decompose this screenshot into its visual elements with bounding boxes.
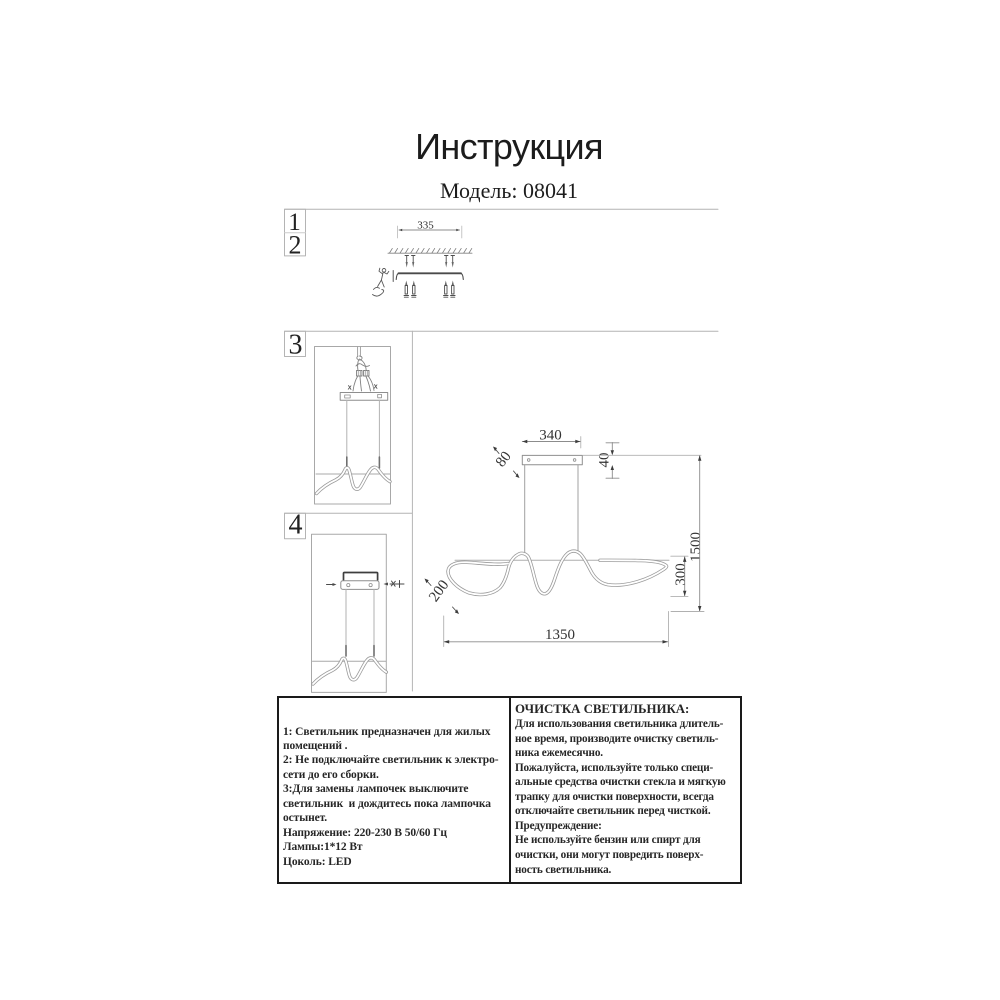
svg-text:1500: 1500 xyxy=(688,532,704,562)
svg-text:80: 80 xyxy=(493,449,515,471)
svg-text:2: 2 xyxy=(289,231,302,260)
svg-text:1350: 1350 xyxy=(545,627,575,643)
svg-text:300: 300 xyxy=(673,563,689,586)
svg-text:4: 4 xyxy=(289,510,303,541)
svg-text:3: 3 xyxy=(289,330,303,361)
svg-text:200: 200 xyxy=(426,577,452,605)
svg-text:40: 40 xyxy=(597,453,613,468)
